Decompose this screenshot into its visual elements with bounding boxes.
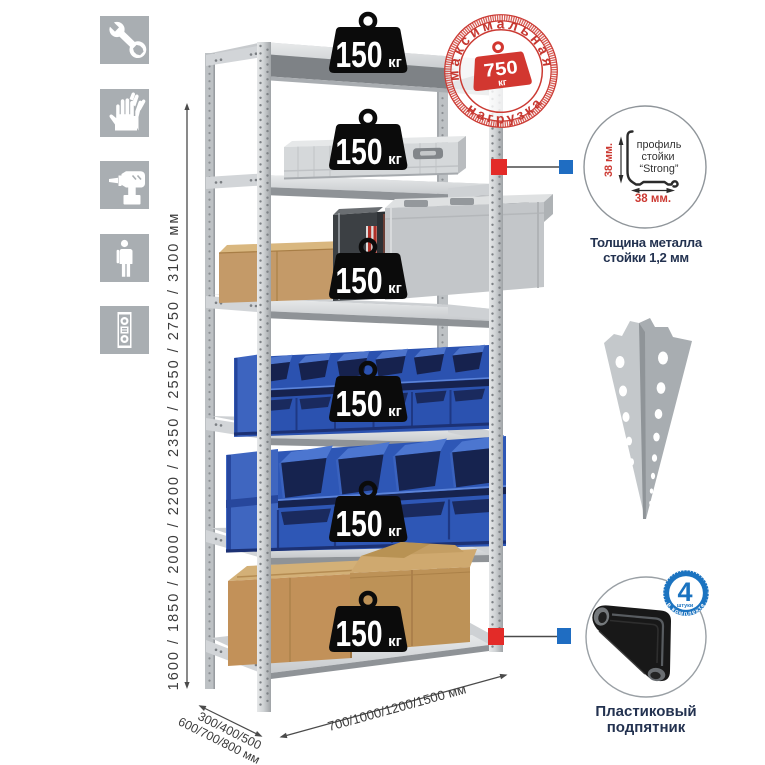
svg-text:1600 / 1850 / 2000 / 2200 / 23: 1600 / 1850 / 2000 / 2200 / 2350 / 2550 …	[166, 212, 182, 691]
svg-text:кг: кг	[388, 403, 402, 420]
svg-text:кг: кг	[388, 633, 402, 650]
svg-text:150: 150	[336, 383, 383, 424]
svg-text:кг: кг	[388, 280, 402, 297]
svg-text:кг: кг	[497, 77, 507, 89]
svg-text:кг: кг	[388, 523, 402, 540]
svg-text:кг: кг	[388, 54, 402, 71]
svg-text:подпятник: подпятник	[607, 719, 686, 736]
svg-text:150: 150	[336, 503, 383, 544]
svg-text:профиль: профиль	[637, 139, 682, 151]
svg-text:“Strong”: “Strong”	[639, 163, 678, 175]
svg-text:38 мм.: 38 мм.	[603, 143, 615, 177]
svg-text:кг: кг	[388, 151, 402, 168]
svg-text:150: 150	[336, 131, 383, 172]
svg-text:150: 150	[336, 260, 383, 301]
svg-text:Толщина металла: Толщина металла	[590, 235, 703, 250]
svg-text:стойки 1,2 мм: стойки 1,2 мм	[603, 250, 689, 265]
svg-text:38 мм.: 38 мм.	[635, 193, 671, 205]
svg-text:150: 150	[336, 613, 383, 654]
svg-text:Пластиковый: Пластиковый	[595, 703, 696, 720]
svg-text:150: 150	[336, 34, 383, 75]
svg-text:стойки: стойки	[641, 151, 674, 163]
svg-text:штуки: штуки	[677, 603, 693, 609]
